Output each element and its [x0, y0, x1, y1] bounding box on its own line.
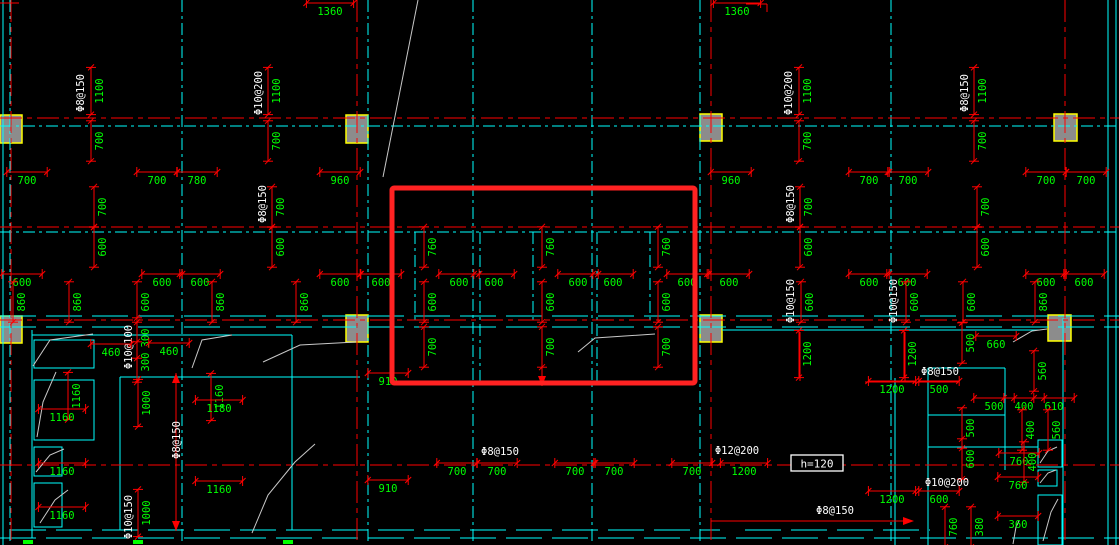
dimension-label: 1100	[94, 78, 106, 103]
dimension-label: 1200	[879, 494, 904, 506]
dimension-label: 600	[485, 277, 504, 289]
dimension-label: 600	[153, 277, 172, 289]
dimension-label: 600	[1075, 277, 1094, 289]
rebar-spacing-label: Φ10@150	[888, 279, 900, 323]
dimension-label: 400	[1015, 401, 1034, 413]
dimension-label: 700	[488, 466, 507, 478]
dimension-label: 600	[191, 277, 210, 289]
dimension-label: 1200	[731, 466, 756, 478]
column-marker	[1048, 315, 1071, 341]
cropped-label-fragment	[23, 540, 33, 544]
dimension-label: 600	[331, 277, 350, 289]
cropped-label-fragment	[283, 540, 293, 544]
rebar-spacing-label: Φ8@150	[959, 74, 971, 112]
rebar-spacing-label: Φ8@150	[481, 446, 519, 458]
rebar-spacing-label: Φ10@100	[123, 325, 135, 369]
dimension-label: 1160	[71, 383, 83, 408]
dimension-label: 700	[94, 132, 106, 151]
dimension-label: 1360	[317, 6, 342, 18]
dimension-label: 700	[18, 175, 37, 187]
dimension-label: 760	[545, 238, 557, 257]
dimension-label: 700	[980, 198, 992, 217]
dimension-label: 1160	[206, 484, 231, 496]
dimension-label: 600	[661, 293, 673, 312]
dimension-label: 700	[899, 175, 918, 187]
dimension-label: 600	[930, 494, 949, 506]
dimension-label: 700	[566, 466, 585, 478]
dimension-label: 1200	[802, 341, 814, 366]
dimension-label: 600	[450, 277, 469, 289]
dimension-label: 460	[102, 347, 121, 359]
dimension-label: 380	[974, 518, 986, 537]
dimension-label: 600	[427, 293, 439, 312]
dimension-label: 1200	[907, 341, 919, 366]
dimension-label: 860	[215, 293, 227, 312]
dimension-label: 700	[661, 338, 673, 357]
dimension-label: 1160	[49, 466, 74, 478]
dimension-label: 600	[804, 293, 816, 312]
rebar-spacing-label: Φ10@200	[253, 71, 265, 115]
rebar-spacing-label: Φ10@150	[123, 495, 135, 539]
dimension-label: 700	[148, 175, 167, 187]
cad-drawing-canvas: 13601360Φ8@1501100700Φ10@2001100700Φ10@2…	[0, 0, 1119, 545]
dimension-label: 1360	[724, 6, 749, 18]
dimension-label: 700	[803, 198, 815, 217]
dimension-label: 600	[545, 293, 557, 312]
dimension-label: 560	[1037, 362, 1049, 381]
dimension-label: 1100	[977, 78, 989, 103]
dimension-label: 560	[1051, 421, 1063, 440]
dimension-label: 300	[140, 353, 152, 372]
dimension-label: 780	[188, 175, 207, 187]
dimension-label: 460	[160, 346, 179, 358]
dimension-label: 600	[140, 293, 152, 312]
dimension-label: 1000	[141, 390, 153, 415]
rebar-spacing-label: Φ10@150	[785, 279, 797, 323]
dimension-label: 660	[987, 339, 1006, 351]
dimension-label: 860	[16, 293, 28, 312]
dimension-label: 860	[1038, 293, 1050, 312]
dimension-label: 960	[722, 175, 741, 187]
dimension-label: 1160	[49, 510, 74, 522]
dimension-label: 1200	[879, 384, 904, 396]
dimension-label: 600	[980, 238, 992, 257]
dimension-label: 600	[803, 238, 815, 257]
dimension-label: 500	[930, 384, 949, 396]
dimension-label: 700	[802, 132, 814, 151]
dimension-label: 700	[271, 132, 283, 151]
dimension-label: 700	[683, 466, 702, 478]
rebar-spacing-label: Φ10@200	[783, 71, 795, 115]
dimension-label: 700	[860, 175, 879, 187]
rebar-spacing-label: Φ8@150	[257, 185, 269, 223]
dimension-label: 700	[977, 132, 989, 151]
dimension-label: 960	[331, 175, 350, 187]
dimension-label: 910	[379, 483, 398, 495]
dimension-label: 1000	[141, 500, 153, 525]
dimension-label: 760	[1010, 456, 1029, 468]
dimension-label: 600	[860, 277, 879, 289]
dimension-label: 600	[372, 277, 391, 289]
rebar-spacing-label: Φ8@150	[785, 185, 797, 223]
dimension-label: 860	[299, 293, 311, 312]
dimension-label: 700	[1037, 175, 1056, 187]
dimension-label: 700	[448, 466, 467, 478]
dimension-label: 760	[427, 238, 439, 257]
dimension-label: 700	[427, 338, 439, 357]
slab-thickness-note-text: h=120	[800, 458, 833, 471]
dimension-label: 600	[965, 450, 977, 469]
dimension-label: 500	[985, 401, 1004, 413]
dimension-label: 600	[569, 277, 588, 289]
rebar-spacing-label: Φ8@150	[816, 505, 854, 517]
dimension-label: 1100	[802, 78, 814, 103]
dimension-label: 500	[965, 419, 977, 438]
dimension-label: 600	[604, 277, 623, 289]
dimension-label: 760	[948, 518, 960, 537]
dimension-label: 760	[1009, 480, 1028, 492]
dimension-label: 400	[1025, 421, 1037, 440]
dimension-label: 600	[966, 293, 978, 312]
dimension-label: 300	[140, 329, 152, 348]
dimension-label: 700	[97, 198, 109, 217]
dimension-label: 600	[275, 238, 287, 257]
rebar-spacing-label: Φ10@200	[925, 477, 969, 489]
dimension-label: 400	[1027, 453, 1039, 472]
dimension-label: 360	[1009, 519, 1028, 531]
rebar-spacing-label: Φ8@150	[171, 421, 183, 459]
dimension-label: 1160	[49, 412, 74, 424]
dimension-label: 700	[545, 338, 557, 357]
dimension-label: 1100	[271, 78, 283, 103]
dimension-label: 600	[720, 277, 739, 289]
dimension-label: 700	[605, 466, 624, 478]
dimension-label: 610	[1045, 401, 1064, 413]
cropped-label-fragment	[133, 540, 143, 544]
dimension-label: 1180	[206, 403, 231, 415]
cad-viewport: 13601360Φ8@1501100700Φ10@2001100700Φ10@2…	[0, 0, 1119, 545]
dimension-label: 700	[275, 198, 287, 217]
rebar-spacing-label: Φ12@200	[715, 445, 759, 457]
dimension-label: 700	[1077, 175, 1096, 187]
rebar-spacing-label: Φ8@150	[75, 74, 87, 112]
dimension-label: 860	[72, 293, 84, 312]
dimension-label: 600	[909, 293, 921, 312]
dimension-label: 600	[1037, 277, 1056, 289]
dimension-label: 760	[661, 238, 673, 257]
dimension-label: 600	[97, 238, 109, 257]
rebar-spacing-label: Φ8@150	[921, 366, 959, 378]
dimension-label: 600	[898, 277, 917, 289]
